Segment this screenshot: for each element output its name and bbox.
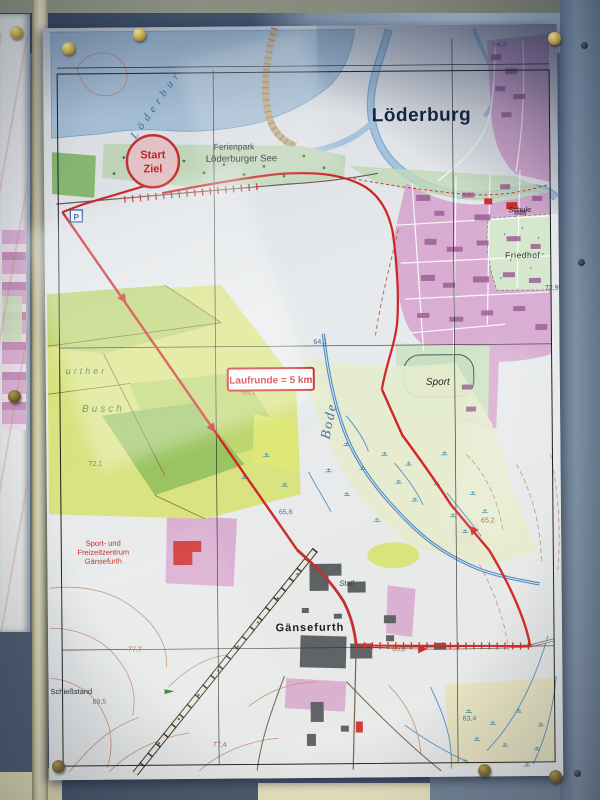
ferienpark-label-line1: Ferienpark [214, 141, 255, 151]
elev-64-1: 64,1 [313, 339, 327, 346]
ziel-label: Ziel [143, 163, 162, 175]
friedhof-label: Friedhof [505, 250, 540, 260]
elev-63-4: 63,4 [463, 715, 477, 722]
elev-65-8: 65,8 [392, 646, 406, 653]
parking-label: P [73, 212, 79, 222]
sport-label: Sport [426, 377, 451, 388]
elev-69-5: 69,5 [93, 699, 107, 706]
elev-77-4: 77,4 [213, 742, 227, 749]
brass-pin [52, 760, 65, 773]
left-map-sheet [0, 14, 30, 632]
route-info-label: Laufrunde = 5 km [229, 375, 312, 387]
brass-pin [549, 770, 562, 783]
freizeit-label-line2: Freizeitzentrum [77, 548, 129, 557]
brass-pin [478, 764, 491, 777]
elev-72-9: 72,9 [545, 285, 559, 292]
elev-77-7: 77,7 [128, 646, 142, 653]
town-name-label: Löderburg [372, 105, 472, 127]
freizeit-label-line1: Sport- und [86, 539, 121, 548]
brass-pin [10, 26, 23, 39]
elev-72-1: 72,1 [89, 461, 103, 468]
board-roof-edge [0, 0, 600, 13]
ferienpark-label-line2: Löderburger See [206, 153, 277, 165]
start-label: Start [140, 149, 166, 161]
elev-66-1: 66,1 [242, 389, 256, 396]
board-left-lower [0, 632, 32, 772]
brass-pin [62, 42, 75, 55]
gaensefurth-label: Gänsefurth [276, 622, 345, 635]
brass-pin [133, 28, 146, 41]
elev-65-6: 65,6 [279, 509, 293, 516]
freizeit-label-line3: Gänsefurth [85, 557, 122, 566]
busch-label-line2: Busch [82, 404, 125, 415]
schiessstand-label: Schießstand [50, 687, 92, 696]
map-graphic: Löderburg Löderbur Start Ziel Ferienpark… [43, 24, 564, 780]
screw-hole [578, 259, 585, 266]
busch-label-line1: urther [66, 366, 108, 376]
elev-64-3: 64,3 [493, 41, 507, 48]
noticeboard-photo: Löderburg Löderbur Start Ziel Ferienpark… [0, 0, 600, 800]
brass-pin [548, 32, 561, 45]
screw-hole [574, 770, 581, 777]
stall-label: Stall [339, 579, 354, 588]
screw-hole [581, 42, 588, 49]
elev-65-2: 65,2 [481, 517, 495, 524]
left-sheet-map-lines [0, 34, 28, 634]
map-sheet: Löderburg Löderbur Start Ziel Ferienpark… [43, 24, 564, 780]
board-right [560, 0, 600, 800]
brass-pin [8, 390, 21, 403]
frame-rail-bottom-center [258, 783, 436, 800]
schule-label: Schule [508, 205, 531, 214]
